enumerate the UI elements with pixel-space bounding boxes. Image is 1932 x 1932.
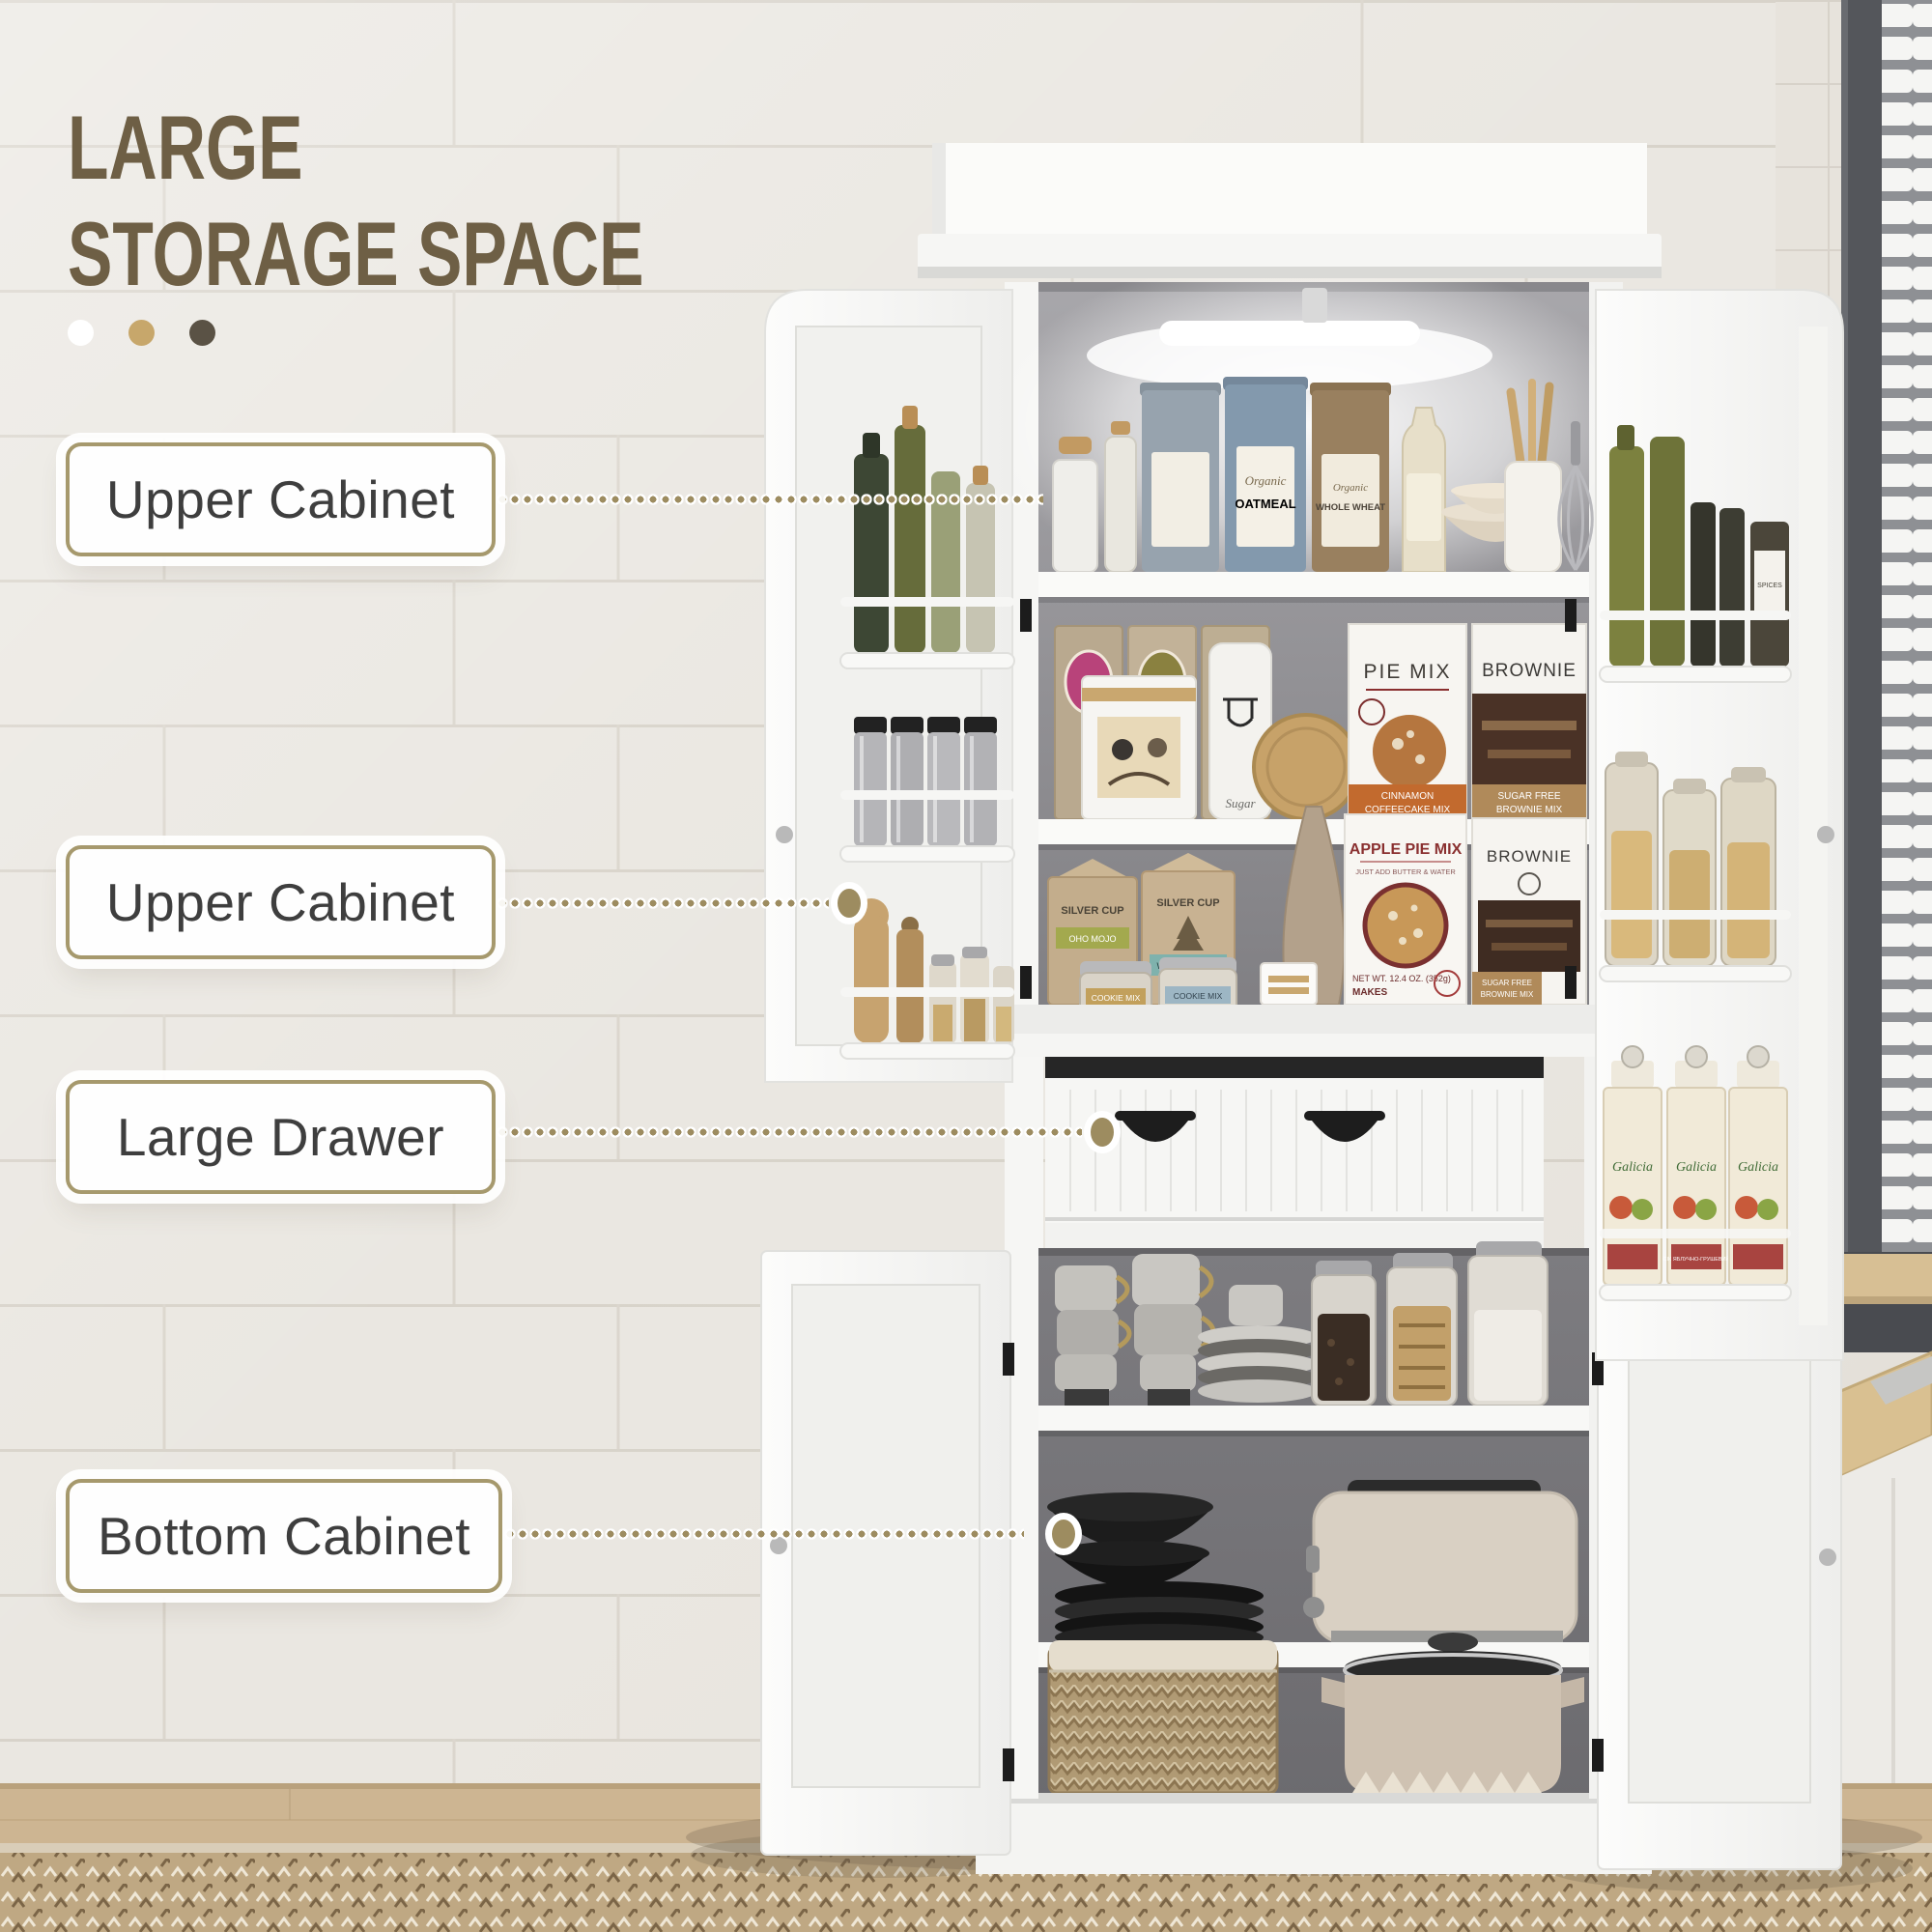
headline-line-2: STORAGE SPACE (68, 201, 644, 307)
pantry-cabinet: Organic OATMEAL Organic WHOLE WHEAT (761, 143, 1843, 1874)
drawer-recess (1045, 1057, 1544, 1078)
upper-right-door: SPICES G (1596, 290, 1843, 1360)
window-blinds (1882, 0, 1932, 1252)
svg-text:SUGAR FREE: SUGAR FREE (1482, 979, 1532, 987)
svg-text:Sugar: Sugar (1225, 796, 1256, 810)
art-tin (1082, 676, 1196, 819)
hinge-icon (1020, 599, 1032, 632)
bottom-cabinet-interior (1038, 1241, 1589, 1799)
hinge-icon (1003, 1748, 1014, 1781)
product-feature-image: Organic OATMEAL Organic WHOLE WHEAT (0, 0, 1932, 1932)
galicia-cartons: Galicia Galicia СІК ЯБЛУЧНО-ГРУШЕВИЙ Gal… (1604, 1046, 1787, 1285)
svg-text:PIE MIX: PIE MIX (1363, 661, 1451, 683)
door-latch (1302, 288, 1327, 323)
svg-text:APPLE PIE MIX: APPLE PIE MIX (1350, 841, 1463, 858)
door-knob (1819, 1548, 1836, 1566)
leader-upper-cabinet-1 (497, 494, 1043, 505)
wooden-lid (1254, 715, 1358, 819)
callout-label: Large Drawer (117, 1106, 444, 1168)
callout-label: Bottom Cabinet (98, 1505, 470, 1567)
svg-text:BROWNIE: BROWNIE (1487, 847, 1572, 866)
svg-text:BROWNIE MIX: BROWNIE MIX (1481, 990, 1534, 999)
window (1841, 0, 1932, 1352)
svg-text:OHO MOJO: OHO MOJO (1069, 934, 1117, 944)
upper-left-door (765, 290, 1014, 1082)
upper-cabinet-interior: Organic OATMEAL Organic WHOLE WHEAT (985, 251, 1642, 1048)
svg-text:Galicia: Galicia (1612, 1160, 1653, 1175)
bottom-left-door (761, 1251, 1014, 1855)
svg-text:OATMEAL: OATMEAL (1235, 497, 1295, 511)
apple-pie-mix-box: APPLE PIE MIX JUST ADD BUTTER & WATER NE… (1345, 814, 1466, 1005)
toaster (1303, 1480, 1577, 1642)
svg-text:SUGAR FREE: SUGAR FREE (1497, 791, 1560, 802)
leader-upper-cabinet-2 (497, 897, 829, 909)
door-knob (1817, 826, 1834, 843)
svg-text:COOKIE MIX: COOKIE MIX (1092, 993, 1141, 1003)
crown-molding (918, 143, 1662, 278)
svg-text:CINNAMON: CINNAMON (1381, 791, 1434, 802)
svg-text:WHOLE WHEAT: WHOLE WHEAT (1316, 502, 1385, 513)
leader-endpoint-upper-cabinet-2 (831, 882, 867, 924)
headline-line-1: LARGE (68, 95, 644, 201)
svg-text:SILVER CUP: SILVER CUP (1156, 897, 1219, 909)
leader-large-drawer (497, 1126, 1082, 1138)
svg-text:SILVER CUP: SILVER CUP (1061, 905, 1123, 917)
callout-upper-cabinet-1: Upper Cabinet (66, 442, 496, 556)
hinge-icon (1003, 1343, 1014, 1376)
callout-upper-cabinet-2: Upper Cabinet (66, 845, 496, 959)
pie-mix-box: PIE MIX CINNAMON COFFEECAKE MIX (1349, 624, 1466, 819)
callout-bottom-cabinet: Bottom Cabinet (66, 1479, 502, 1593)
svg-text:Organic: Organic (1333, 482, 1368, 494)
hinge-icon (1565, 599, 1577, 632)
callout-large-drawer: Large Drawer (66, 1080, 496, 1194)
door-knob (776, 826, 793, 843)
svg-text:BROWNIE: BROWNIE (1482, 661, 1577, 681)
svg-text:JUST ADD BUTTER & WATER: JUST ADD BUTTER & WATER (1355, 867, 1456, 876)
callout-label: Upper Cabinet (106, 871, 455, 933)
svg-text:SPICES: SPICES (1757, 582, 1782, 589)
wicker-basket (1049, 1640, 1277, 1793)
bottom-shelf-board-1 (1038, 1406, 1589, 1431)
accent-dot-white (68, 320, 94, 346)
svg-text:COOKIE MIX: COOKIE MIX (1174, 991, 1223, 1001)
brownie-box: BROWNIE SUGAR FREE BROWNIE MIX (1472, 624, 1586, 819)
place-card (1261, 963, 1317, 1005)
pantry-jars (1312, 1241, 1548, 1406)
hinge-icon (1592, 1739, 1604, 1772)
accent-dot-dark (189, 320, 215, 346)
accent-dot-tan (128, 320, 155, 346)
headline: LARGE STORAGE SPACE (68, 95, 644, 307)
svg-text:СІК ЯБЛУЧНО-ГРУШЕВИЙ: СІК ЯБЛУЧНО-ГРУШЕВИЙ (1663, 1255, 1730, 1263)
hutch-counter (1005, 1005, 1623, 1057)
hinge-icon (1565, 966, 1577, 999)
headline-accent-dots (68, 320, 250, 346)
svg-text:BROWNIE MIX: BROWNIE MIX (1496, 805, 1563, 815)
svg-text:Galicia: Galicia (1738, 1160, 1778, 1175)
pasta-clip-jars (1605, 752, 1776, 966)
base-plinth (976, 1799, 1652, 1874)
spices-jar: SPICES (1750, 522, 1789, 667)
upper-shelf-board-1 (1038, 572, 1589, 597)
door-spice-rack-right: SPICES G (1600, 425, 1791, 1300)
leader-bottom-cabinet (504, 1528, 1024, 1540)
large-drawer (1045, 1078, 1544, 1248)
oatmeal-tins: Organic OATMEAL Organic WHOLE WHEAT (1140, 377, 1391, 572)
leader-endpoint-large-drawer (1084, 1111, 1121, 1153)
leader-endpoint-bottom-cabinet (1045, 1513, 1082, 1555)
hinge-icon (1020, 966, 1032, 999)
svg-text:Organic: Organic (1245, 473, 1287, 488)
svg-text:Galicia: Galicia (1676, 1160, 1717, 1175)
callout-label: Upper Cabinet (106, 469, 455, 530)
svg-text:MAKES: MAKES (1352, 987, 1387, 998)
